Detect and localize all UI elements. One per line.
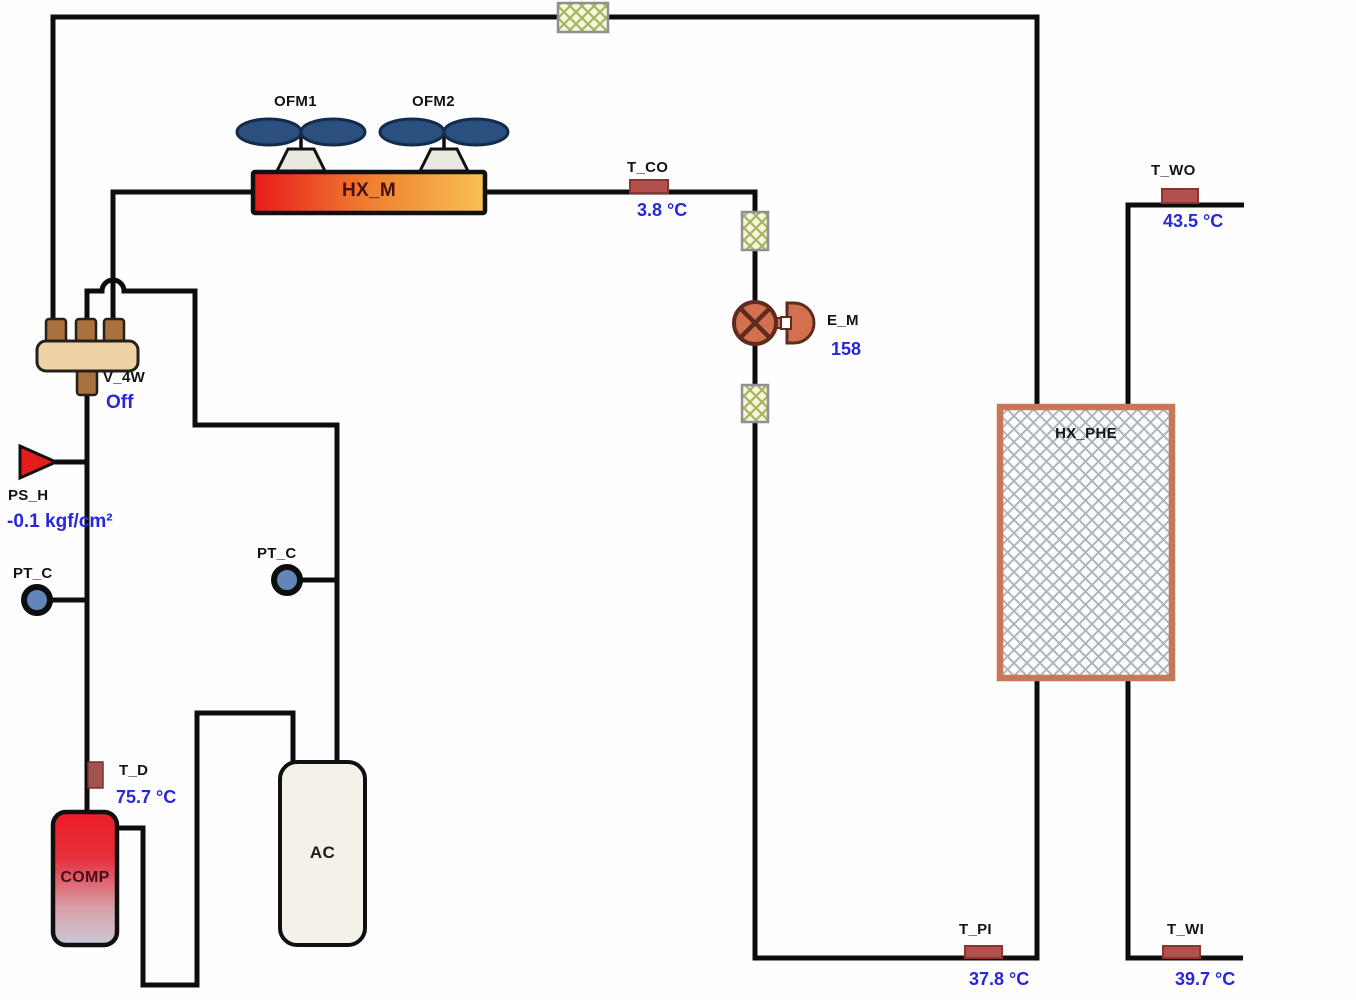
hx-m-label: HX_M — [253, 180, 485, 202]
hmi-diagram: OFM1 OFM2 HX_M T_CO 3.8 °C E_M 158 V_4W … — [0, 0, 1356, 1000]
t-wi-label: T_WI — [1167, 921, 1204, 938]
ofm2-label: OFM2 — [412, 93, 455, 110]
pt-c-left-sensor[interactable] — [24, 587, 50, 613]
t-co-label: T_CO — [627, 159, 668, 176]
v4w-stub-right — [104, 319, 124, 343]
fan2-base — [420, 149, 468, 171]
t-wi-value: 39.7 °C — [1175, 969, 1235, 990]
t-co-value: 3.8 °C — [637, 200, 687, 221]
fan1-base — [277, 149, 325, 171]
pt-c-right-sensor[interactable] — [274, 567, 300, 593]
ofm1-label: OFM1 — [274, 93, 317, 110]
pt-c-right-label: PT_C — [257, 545, 297, 562]
ps-h-label: PS_H — [8, 487, 48, 504]
pipe-main-top-loop — [53, 17, 1037, 407]
pipe-water-in — [1128, 678, 1243, 958]
sight-glass-top-icon — [558, 3, 608, 32]
t-wo-label: T_WO — [1151, 162, 1196, 179]
ps-h-value: -0.1 kgf/cm² — [7, 511, 113, 533]
ps-h-switch[interactable] — [20, 446, 56, 478]
pipe-discharge-loop — [115, 713, 293, 985]
t-d-sensor[interactable] — [88, 762, 103, 788]
v4w-stub-mid — [76, 319, 96, 343]
t-d-label: T_D — [119, 762, 148, 779]
ac-label: AC — [280, 843, 365, 863]
e-m-valve[interactable] — [734, 302, 814, 344]
fan2-blade-left — [380, 119, 444, 145]
sight-glass-lower-icon — [742, 385, 768, 422]
t-wo-sensor[interactable] — [1162, 189, 1198, 203]
pipe-water-out — [1128, 205, 1244, 407]
v4w-stub-left — [46, 319, 66, 343]
fan1-blade-right — [301, 119, 365, 145]
hx-phe-symbol — [1000, 407, 1172, 678]
pt-c-left-label: PT_C — [13, 565, 53, 582]
diagram-canvas — [0, 0, 1356, 1000]
e-m-value: 158 — [831, 339, 861, 360]
comp-label: COMP — [53, 869, 117, 887]
t-pi-sensor[interactable] — [965, 946, 1002, 958]
v-4w-status: Off — [106, 392, 133, 414]
fan2-blade-right — [444, 119, 508, 145]
t-wo-value: 43.5 °C — [1163, 211, 1223, 232]
t-wi-sensor[interactable] — [1163, 946, 1200, 958]
v-4w-label: V_4W — [103, 369, 145, 386]
t-pi-label: T_PI — [959, 921, 992, 938]
fan1-blade-left — [237, 119, 301, 145]
t-pi-value: 37.8 °C — [969, 969, 1029, 990]
t-co-sensor[interactable] — [630, 180, 668, 193]
e-m-actuator-notch — [781, 317, 791, 329]
v4w-stub-bottom — [77, 369, 97, 395]
e-m-label: E_M — [827, 312, 859, 329]
t-d-value: 75.7 °C — [116, 787, 176, 808]
sight-glass-upper-icon — [742, 212, 768, 250]
v4w-body — [37, 341, 138, 371]
pipe-hxm-to-v4w — [113, 192, 253, 321]
hx-phe-label: HX_PHE — [1000, 425, 1172, 442]
